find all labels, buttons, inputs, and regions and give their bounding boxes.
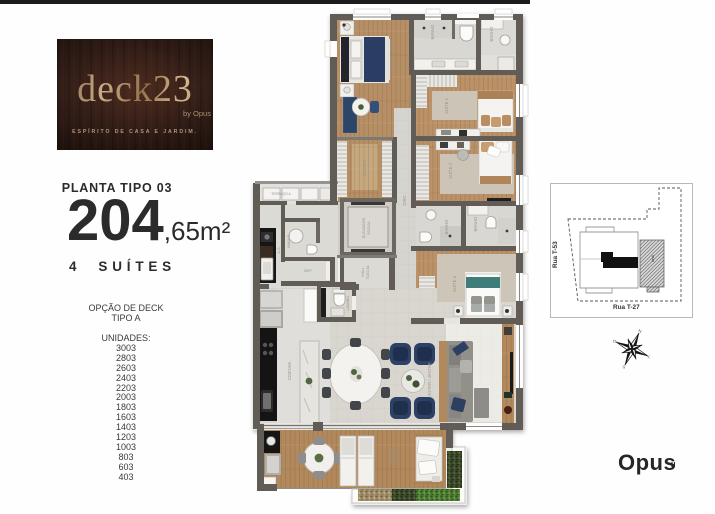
svg-text:LAVABO: LAVABO — [346, 296, 350, 311]
svg-text:A.S.: A.S. — [277, 246, 281, 253]
svg-text:SUÍTE MASTER: SUÍTE MASTER — [390, 42, 395, 73]
svg-text:CIRC.: CIRC. — [402, 194, 407, 205]
svg-text:SUÍTE 3: SUÍTE 3 — [452, 275, 457, 291]
svg-text:BANHO: BANHO — [444, 219, 449, 235]
svg-text:Rua T-27: Rua T-27 — [613, 304, 640, 311]
svg-text:TERRAÇO A: TERRAÇO A — [271, 192, 291, 196]
svg-text:L: L — [647, 354, 652, 360]
svg-text:BANHO: BANHO — [473, 216, 478, 232]
svg-text:O: O — [612, 338, 617, 344]
svg-text:BANHO: BANHO — [287, 234, 291, 248]
svg-text:SOCIAL: SOCIAL — [366, 265, 370, 279]
svg-text:SUÍTE 2: SUÍTE 2 — [448, 162, 453, 178]
svg-text:BANHO: BANHO — [489, 26, 494, 42]
svg-text:HALL: HALL — [361, 267, 365, 277]
svg-text:S: S — [622, 364, 627, 370]
svg-text:TERRAÇO: TERRAÇO — [389, 448, 393, 467]
svg-text:CLOSET: CLOSET — [362, 159, 367, 176]
svg-text:GOURMET: GOURMET — [394, 447, 398, 467]
svg-text:DEP.: DEP. — [304, 269, 312, 273]
svg-text:deck: deck — [651, 255, 655, 262]
svg-text:ELEVADOR: ELEVADOR — [362, 218, 366, 239]
svg-text:ESTAR / JANTAR: ESTAR / JANTAR — [427, 362, 432, 395]
svg-text:Rua T-53: Rua T-53 — [552, 241, 559, 268]
svg-text:SOCIAL: SOCIAL — [367, 221, 371, 235]
svg-text:BANHO: BANHO — [430, 24, 435, 40]
svg-text:N: N — [638, 328, 643, 334]
svg-text:SUÍTE 1: SUÍTE 1 — [444, 97, 449, 113]
svg-text:COZINHA: COZINHA — [287, 361, 292, 380]
